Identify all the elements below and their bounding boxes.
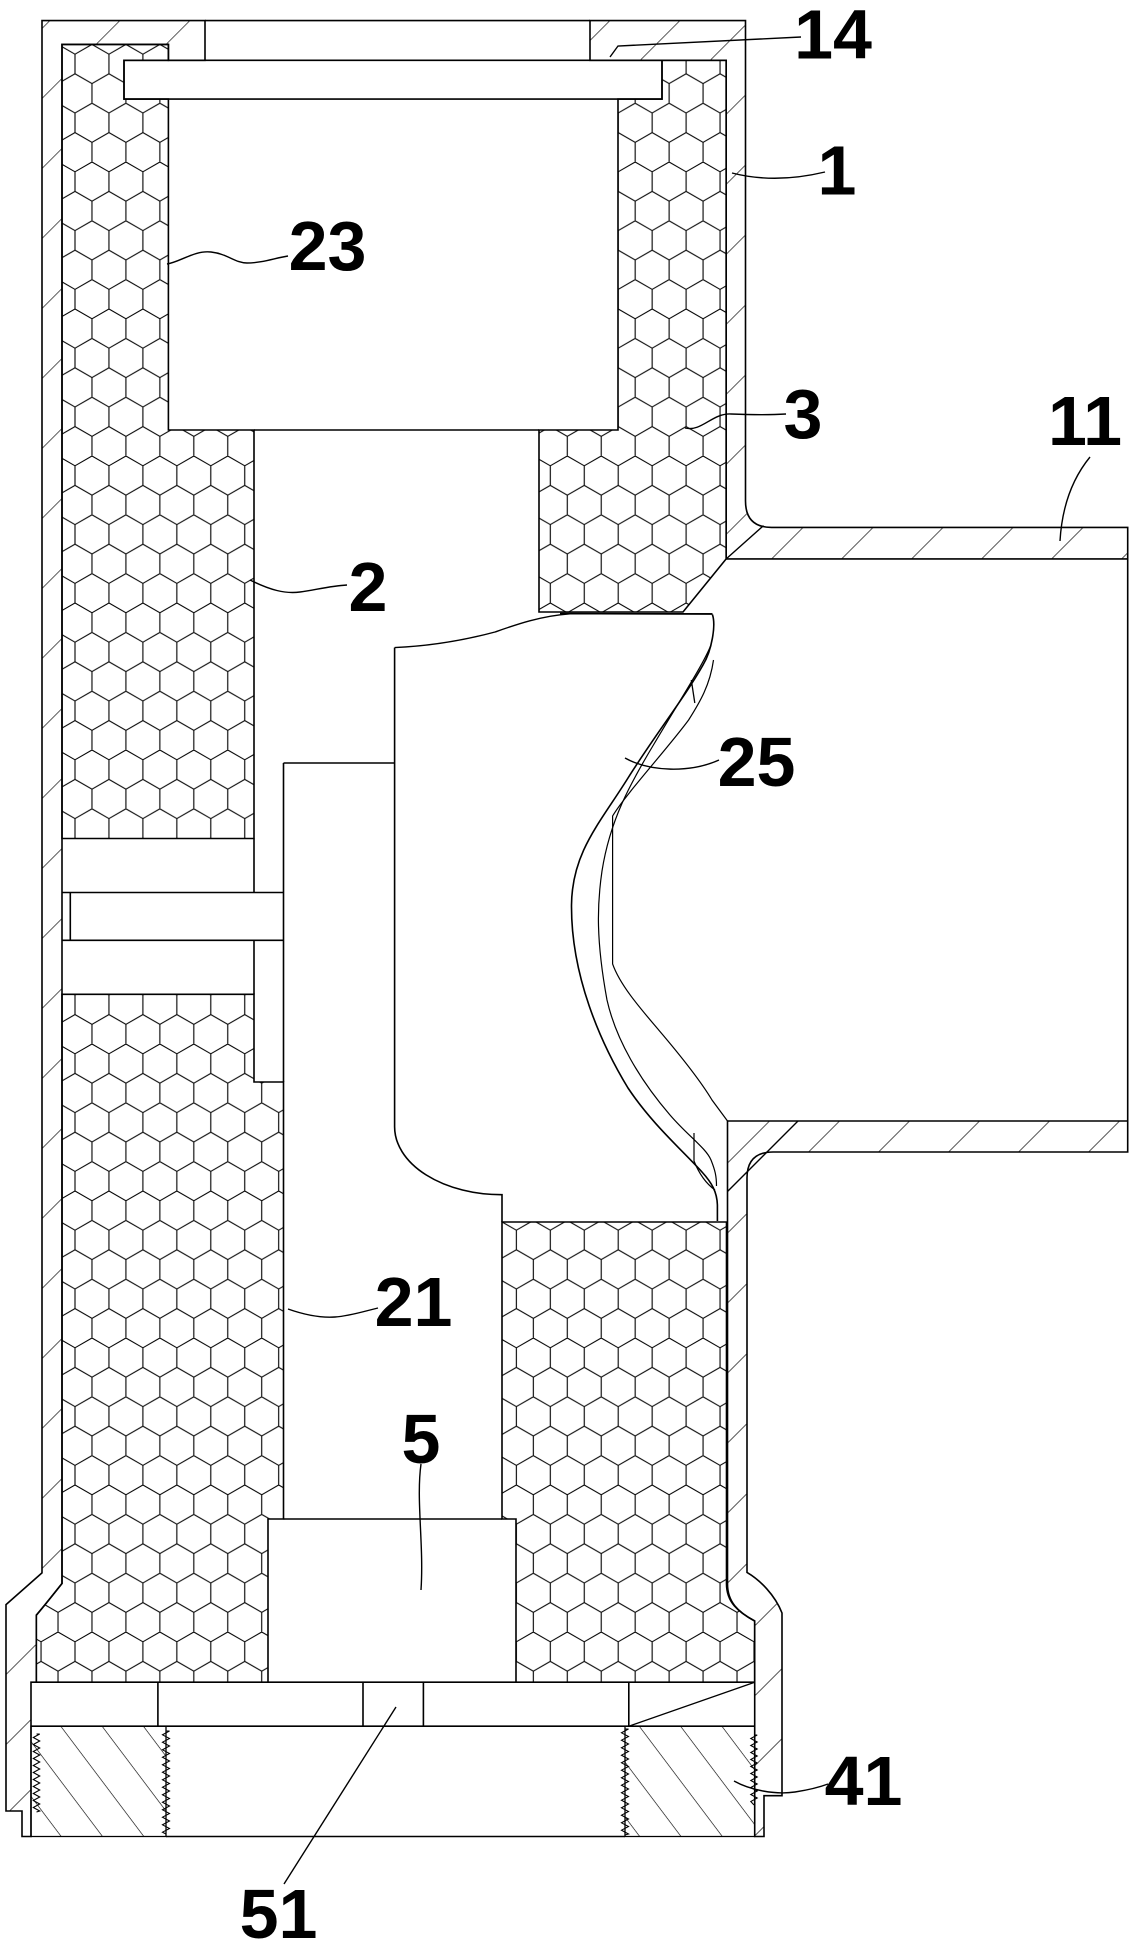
svg-text:14: 14 — [794, 0, 872, 73]
svg-text:41: 41 — [825, 1742, 903, 1820]
svg-text:51: 51 — [240, 1875, 318, 1942]
svg-text:5: 5 — [402, 1400, 441, 1478]
svg-text:2: 2 — [349, 548, 388, 626]
svg-text:3: 3 — [784, 375, 823, 453]
svg-text:21: 21 — [375, 1263, 453, 1341]
svg-text:11: 11 — [1048, 382, 1122, 460]
svg-text:25: 25 — [718, 723, 796, 801]
svg-text:1: 1 — [818, 132, 857, 210]
svg-text:23: 23 — [289, 207, 367, 285]
